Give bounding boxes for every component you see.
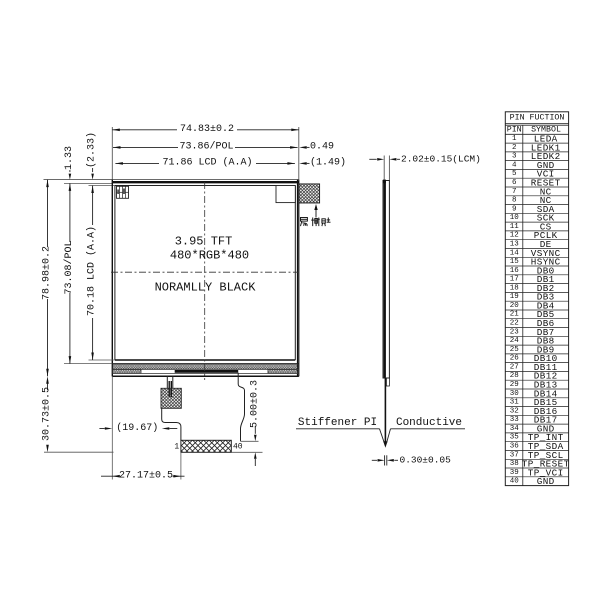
svg-text:26: 26 [510, 355, 520, 363]
svg-text:73.86/POL: 73.86/POL [179, 141, 233, 153]
svg-text:1: 1 [512, 135, 517, 143]
svg-text:480*RGB*480: 480*RGB*480 [170, 249, 249, 263]
svg-text:32: 32 [510, 407, 519, 415]
svg-text:28: 28 [510, 372, 519, 380]
svg-text:37: 37 [510, 451, 519, 459]
svg-text:40: 40 [233, 442, 243, 451]
svg-text:6: 6 [512, 179, 517, 187]
svg-text:70.18 LCD (A.A): 70.18 LCD (A.A) [86, 226, 98, 316]
svg-text:(2.33): (2.33) [86, 132, 98, 168]
svg-text:15: 15 [510, 258, 520, 266]
svg-text:13: 13 [510, 241, 520, 249]
svg-text:40: 40 [510, 478, 520, 486]
svg-text:9: 9 [512, 205, 517, 213]
svg-text:30.73±0.5: 30.73±0.5 [42, 387, 53, 441]
svg-text:33: 33 [510, 416, 520, 424]
svg-text:5.00±0.3: 5.00±0.3 [249, 380, 260, 428]
svg-text:16: 16 [510, 267, 520, 275]
svg-text:PIN: PIN [507, 126, 522, 135]
svg-text:7: 7 [512, 188, 517, 196]
svg-text:12: 12 [510, 232, 519, 240]
svg-text:0.49: 0.49 [310, 142, 334, 153]
svg-text:8: 8 [512, 197, 517, 205]
svg-text:GND: GND [537, 476, 555, 487]
svg-text:71.86 LCD (A.A): 71.86 LCD (A.A) [162, 157, 252, 169]
svg-text:38: 38 [510, 460, 519, 468]
svg-text:19: 19 [510, 293, 519, 301]
svg-text:23: 23 [510, 328, 520, 336]
svg-text:2.02±0.15(LCM): 2.02±0.15(LCM) [401, 154, 481, 165]
svg-text:30: 30 [510, 390, 520, 398]
svg-text:31: 31 [510, 399, 520, 407]
svg-text:Conductive: Conductive [396, 417, 462, 429]
svg-text:(1.49): (1.49) [310, 157, 346, 169]
svg-text:34: 34 [510, 425, 520, 433]
svg-text:39: 39 [510, 469, 519, 477]
svg-text:10: 10 [510, 214, 520, 222]
svg-text:(19.67): (19.67) [116, 422, 158, 434]
svg-text:20: 20 [510, 302, 520, 310]
svg-text:25: 25 [510, 346, 520, 354]
svg-text:1: 1 [174, 442, 179, 451]
svg-text:NORAMLLY BLACK: NORAMLLY BLACK [155, 281, 257, 295]
svg-text:3.95 TFT: 3.95 TFT [175, 234, 233, 248]
svg-text:73.08/POL: 73.08/POL [63, 240, 75, 294]
svg-text:PIN FUCTION: PIN FUCTION [510, 114, 565, 123]
svg-text:18: 18 [510, 284, 519, 292]
svg-text:17: 17 [510, 276, 519, 284]
svg-text:27.17±0.5: 27.17±0.5 [119, 470, 173, 481]
svg-text:24: 24 [510, 337, 520, 345]
svg-text:78.98±0.2: 78.98±0.2 [42, 246, 53, 300]
svg-text:4: 4 [512, 161, 517, 169]
svg-text:22: 22 [510, 320, 519, 328]
svg-text:36: 36 [510, 443, 520, 451]
svg-text:Stiffener PI: Stiffener PI [298, 417, 377, 429]
svg-text:2: 2 [512, 144, 517, 152]
svg-text:1.33: 1.33 [64, 146, 75, 170]
svg-text:11: 11 [510, 223, 520, 231]
svg-text:29: 29 [510, 381, 519, 389]
svg-text:74.83±0.2: 74.83±0.2 [180, 124, 234, 135]
svg-text:14: 14 [510, 249, 520, 257]
svg-text:35: 35 [510, 434, 520, 442]
svg-text:27: 27 [510, 363, 519, 371]
svg-text:0.30±0.05: 0.30±0.05 [400, 455, 452, 466]
svg-text:5: 5 [512, 170, 517, 178]
svg-text:21: 21 [510, 311, 520, 319]
svg-text:3: 3 [512, 153, 517, 161]
